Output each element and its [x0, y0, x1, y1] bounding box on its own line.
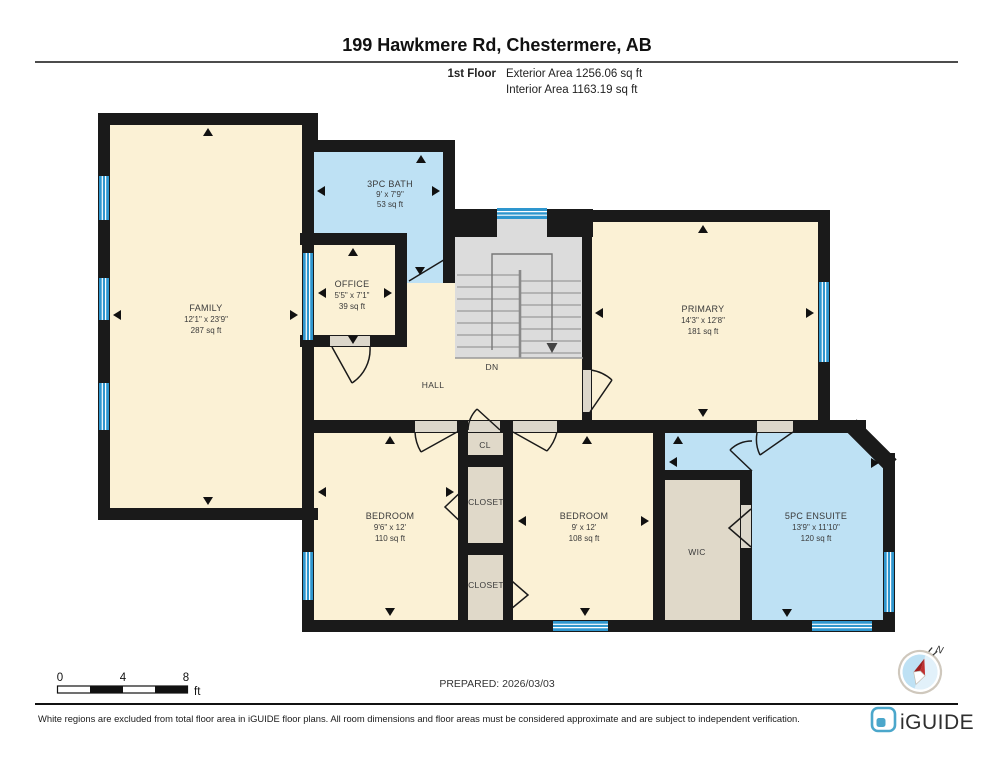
scale-tick-0: 0 [57, 672, 63, 684]
bath-area: 53 sq ft [377, 200, 404, 209]
compass-north-label: N [934, 644, 945, 657]
office-name: OFFICE [335, 279, 370, 289]
scale-bar-seg2 [155, 686, 188, 693]
iguide-logo-icon-dot [877, 718, 886, 727]
window-primary-right [819, 282, 829, 362]
scale-bar-seg1 [90, 686, 123, 693]
primary-area: 181 sq ft [688, 327, 719, 336]
bath-dims: 9' x 7'9" [376, 190, 404, 199]
footer-disclaimer: White regions are excluded from total fl… [38, 713, 800, 724]
floor-plan-page: 199 Hawkmere Rd, Chestermere, AB 1st Flo… [0, 0, 993, 768]
closet-mid-label: CLOSET [468, 497, 504, 507]
hall-label: HALL [422, 380, 444, 390]
bedroom-right-area: 108 sq ft [569, 534, 600, 543]
iguide-logo: iGUIDE [872, 708, 974, 734]
compass-icon: N [894, 640, 949, 699]
cl-label: CL [479, 440, 490, 450]
window-ensuite-right [884, 552, 894, 612]
bath-name: 3PC BATH [367, 179, 413, 189]
hall-floor-under-stairs [453, 357, 584, 422]
scale-bar: 0 4 8 ft [57, 672, 201, 698]
stairs-landing-bump [497, 219, 547, 239]
wic-label: WIC [688, 547, 705, 557]
window-bedroom-right-bottom [553, 621, 608, 631]
family-room-dims: 12'1" x 23'9" [184, 315, 228, 324]
scale-tick-8: 8 [183, 672, 189, 684]
window-family-left-2 [99, 278, 109, 320]
bedroom-left-area: 110 sq ft [375, 534, 406, 543]
bedroom-right-dims: 9' x 12' [572, 523, 597, 532]
family-room-area: 287 sq ft [191, 326, 222, 335]
scale-unit-label: ft [194, 686, 201, 698]
window-stair-landing [497, 208, 547, 219]
bath-floor-lower [405, 233, 445, 283]
iguide-brand-text: iGUIDE [900, 711, 974, 734]
hall-floor-mid [405, 281, 457, 422]
primary-name: PRIMARY [682, 304, 725, 314]
floor-label: 1st Floor [447, 68, 496, 80]
primary-dims: 14'3" x 12'8" [681, 316, 725, 325]
bedroom-left-name: BEDROOM [366, 511, 415, 521]
closet-bottom-label: CLOSET [468, 580, 504, 590]
office-dims: 5'5" x 7'1" [335, 291, 370, 300]
bedroom-right-name: BEDROOM [560, 511, 609, 521]
page-title: 199 Hawkmere Rd, Chestermere, AB [342, 35, 651, 55]
scale-tick-4: 4 [120, 672, 127, 684]
bedroom-left-dims: 9'6" x 12' [374, 523, 407, 532]
ensuite-dims: 13'9" x 11'10" [792, 523, 840, 532]
office-area: 39 sq ft [339, 302, 366, 311]
family-room-name: FAMILY [189, 303, 222, 313]
window-bedroom-left [303, 552, 313, 600]
window-family-left-3 [99, 383, 109, 430]
window-family-office [303, 253, 313, 340]
hall-floor-left [314, 345, 409, 422]
ensuite-name: 5PC ENSUITE [785, 511, 847, 521]
floor-plan-canvas: 199 Hawkmere Rd, Chestermere, AB 1st Flo… [0, 0, 993, 768]
interior-area-label: Interior Area 1163.19 sq ft [506, 84, 638, 96]
window-ensuite-bottom [812, 621, 872, 631]
exterior-area-label: Exterior Area 1256.06 sq ft [506, 68, 643, 80]
stairs-dn-label: DN [486, 362, 499, 372]
ensuite-area: 120 sq ft [801, 534, 832, 543]
prepared-date: PREPARED: 2026/03/03 [439, 678, 555, 690]
window-family-left-1 [99, 176, 109, 220]
